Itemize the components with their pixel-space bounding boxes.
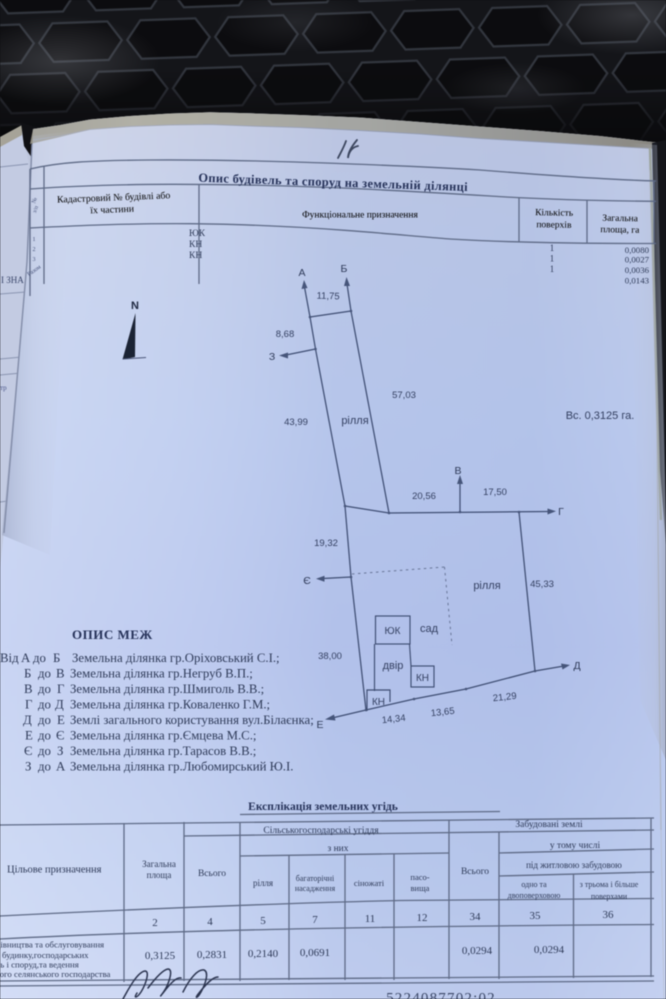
- svg-text:КН: КН: [372, 697, 385, 708]
- svg-text:ЮК: ЮК: [385, 626, 401, 637]
- svg-text:В: В: [56, 667, 65, 681]
- svg-text:Загальна: Загальна: [142, 859, 176, 869]
- svg-text:Є: Є: [56, 729, 64, 743]
- svg-text:1: 1: [550, 264, 555, 274]
- svg-text:рілля: рілля: [473, 580, 500, 592]
- svg-text:Земельна ділянка гр.Тарасов В.: Земельна ділянка гр.Тарасов В.В.;: [70, 744, 256, 758]
- svg-text:Є: Є: [303, 575, 311, 587]
- svg-text:Е: Е: [25, 729, 33, 743]
- svg-text:2: 2: [152, 917, 158, 929]
- svg-text:вища: вища: [411, 883, 430, 893]
- svg-text:12: 12: [417, 912, 428, 924]
- svg-text:1: 1: [550, 254, 555, 264]
- svg-text:до: до: [33, 651, 46, 665]
- svg-text:З: З: [57, 744, 63, 758]
- svg-text:11,75: 11,75: [316, 291, 339, 303]
- svg-text:Забудовані землі: Забудовані землі: [515, 819, 583, 830]
- svg-text:ель і споруд,та ведення: ель і споруд,та ведення: [0, 960, 79, 970]
- svg-text:до: до: [38, 744, 51, 758]
- svg-text:поверхами: поверхами: [591, 892, 628, 901]
- svg-text:Є: Є: [24, 744, 32, 758]
- svg-text:Д: Д: [573, 660, 580, 672]
- svg-text:0,0691: 0,0691: [300, 947, 330, 959]
- svg-text:43,99: 43,99: [284, 417, 308, 428]
- svg-text:0,0080: 0,0080: [625, 245, 650, 255]
- svg-text:одно та: одно та: [521, 880, 547, 889]
- svg-text:Земельна ділянка гр.Негруб В.П: Земельна ділянка гр.Негруб В.П.;: [70, 667, 253, 681]
- svg-text:ОПИС МЕЖ: ОПИС МЕЖ: [72, 627, 153, 642]
- svg-text:0,0036: 0,0036: [625, 265, 650, 275]
- svg-text:Кількість: Кількість: [535, 208, 574, 219]
- svg-text:Всього: Всього: [461, 867, 489, 877]
- svg-text:17,50: 17,50: [483, 487, 507, 498]
- svg-text:5: 5: [260, 915, 266, 927]
- svg-text:0,0294: 0,0294: [462, 945, 493, 957]
- svg-text:І ЗНА: І ЗНА: [1, 275, 24, 285]
- svg-text:А: А: [56, 760, 66, 774]
- svg-text:Г: Г: [558, 506, 564, 518]
- svg-text:до: до: [38, 698, 51, 712]
- svg-text:удівництва та обслуговування: удівництва та обслуговування: [0, 940, 104, 950]
- svg-text:З: З: [25, 760, 31, 774]
- svg-text:Б: Б: [24, 667, 31, 681]
- svg-text:з них: з них: [327, 844, 348, 854]
- svg-text:В: В: [24, 682, 33, 696]
- svg-text:3: 3: [33, 257, 36, 263]
- svg-text:Д: Д: [23, 713, 32, 727]
- svg-text:0,0027: 0,0027: [625, 255, 650, 265]
- svg-text:багаторічні: багаторічні: [296, 874, 335, 883]
- svg-text:стого селянського господарства: стого селянського господарства: [0, 969, 111, 979]
- svg-text:пасо-: пасо-: [410, 872, 429, 882]
- svg-text:Земельна ділянка гр.Шмиголь В.: Земельна ділянка гр.Шмиголь В.В.;: [70, 682, 264, 696]
- svg-text:1: 1: [33, 237, 36, 243]
- svg-text:КН: КН: [416, 673, 429, 684]
- svg-text:до: до: [38, 682, 51, 696]
- svg-text:сад: сад: [420, 623, 439, 635]
- svg-text:двоповерховою: двоповерховою: [508, 891, 561, 900]
- svg-text:Е: Е: [316, 719, 323, 731]
- svg-text:1: 1: [550, 243, 555, 253]
- svg-text:площа: площа: [147, 870, 172, 880]
- svg-text:57,03: 57,03: [392, 390, 416, 401]
- svg-text:КН: КН: [189, 240, 202, 250]
- svg-text:0,0143: 0,0143: [625, 276, 650, 286]
- svg-text:сіножаті: сіножаті: [354, 878, 385, 888]
- svg-text:ЮК: ЮК: [189, 229, 206, 239]
- svg-text:Функціональне призначення: Функціональне призначення: [302, 211, 418, 221]
- svg-text:Б: Б: [341, 263, 348, 275]
- svg-text:КН: КН: [189, 251, 202, 261]
- svg-text:площа, га: площа, га: [600, 225, 640, 236]
- svg-text:насадження: насадження: [295, 884, 336, 893]
- svg-text:36: 36: [603, 909, 615, 921]
- svg-text:Цільове призначення: Цільове призначення: [7, 865, 102, 876]
- svg-text:4: 4: [207, 916, 213, 928]
- svg-text:Г: Г: [57, 682, 64, 696]
- svg-text:5224087702:02: 5224087702:02: [386, 991, 496, 999]
- svg-text:Е: Е: [57, 713, 65, 727]
- svg-text:до: до: [38, 729, 51, 743]
- svg-text:рілля: рілля: [253, 878, 273, 888]
- svg-text:Землі загального користування: Землі загального користування вул.Білаєн…: [70, 713, 314, 727]
- svg-text:0,2831: 0,2831: [197, 949, 227, 961]
- svg-text:19,32: 19,32: [314, 538, 338, 549]
- svg-text:під житловою забудовою: під житловою забудовою: [526, 860, 622, 870]
- svg-text:Земельна ділянка гр.Ємцева М.С: Земельна ділянка гр.Ємцева М.С.;: [70, 729, 256, 743]
- svg-text:45,33: 45,33: [530, 579, 554, 590]
- svg-text:поверхів: поверхів: [536, 220, 572, 231]
- svg-text:0,3125: 0,3125: [145, 950, 176, 962]
- svg-text:до: до: [38, 760, 51, 774]
- svg-text:з трьома і більше: з трьома і більше: [580, 880, 639, 889]
- svg-text:Б: Б: [53, 651, 60, 665]
- svg-text:у тому числі: у тому числі: [550, 841, 601, 851]
- svg-text:7: 7: [312, 914, 318, 926]
- svg-text:0,2140: 0,2140: [248, 948, 279, 960]
- svg-text:до: до: [38, 713, 51, 727]
- svg-text:рілля: рілля: [341, 415, 368, 427]
- svg-text:Загальна: Загальна: [602, 214, 638, 225]
- svg-text:0,0294: 0,0294: [534, 944, 565, 956]
- svg-text:Д: Д: [55, 698, 64, 712]
- svg-text:Вс. 0,3125 га.: Вс. 0,3125 га.: [566, 410, 635, 422]
- svg-text:N: N: [131, 300, 139, 312]
- svg-text:до: до: [38, 667, 51, 681]
- svg-text:А: А: [21, 651, 31, 665]
- svg-text:Земельна ділянка гр.Любомирськ: Земельна ділянка гр.Любомирський Ю.І.: [70, 760, 293, 774]
- svg-text:2: 2: [33, 247, 36, 253]
- svg-text:Земельна ділянка гр.Коваленко: Земельна ділянка гр.Коваленко Г.М.;: [70, 698, 270, 712]
- svg-text:38,00: 38,00: [318, 651, 342, 662]
- svg-text:Всього: Всього: [198, 869, 226, 879]
- svg-text:20,56: 20,56: [412, 491, 436, 502]
- svg-text:Від: Від: [0, 651, 19, 665]
- svg-text:З: З: [269, 351, 275, 363]
- svg-text:8,68: 8,68: [276, 329, 295, 340]
- svg-text:Експлікація земельних угідь: Експлікація земельних угідь: [248, 801, 398, 813]
- svg-text:Земельна ділянка гр.Оріховськи: Земельна ділянка гр.Оріховський С.І.;: [72, 651, 280, 665]
- svg-text:двір: двір: [383, 660, 404, 672]
- svg-text:В: В: [454, 465, 461, 477]
- svg-text:їх частини: їх частини: [90, 204, 135, 217]
- svg-text:тр: тр: [0, 384, 7, 392]
- svg-text:Г: Г: [25, 698, 32, 712]
- svg-text:11: 11: [365, 913, 376, 925]
- svg-text:34: 34: [470, 911, 482, 923]
- svg-text:А: А: [298, 267, 305, 279]
- svg-text:35: 35: [530, 910, 542, 922]
- svg-text:го будинку,господарських: го будинку,господарських: [0, 950, 89, 960]
- svg-text:Сільськогосподарські угіддя: Сільськогосподарські угіддя: [263, 826, 379, 836]
